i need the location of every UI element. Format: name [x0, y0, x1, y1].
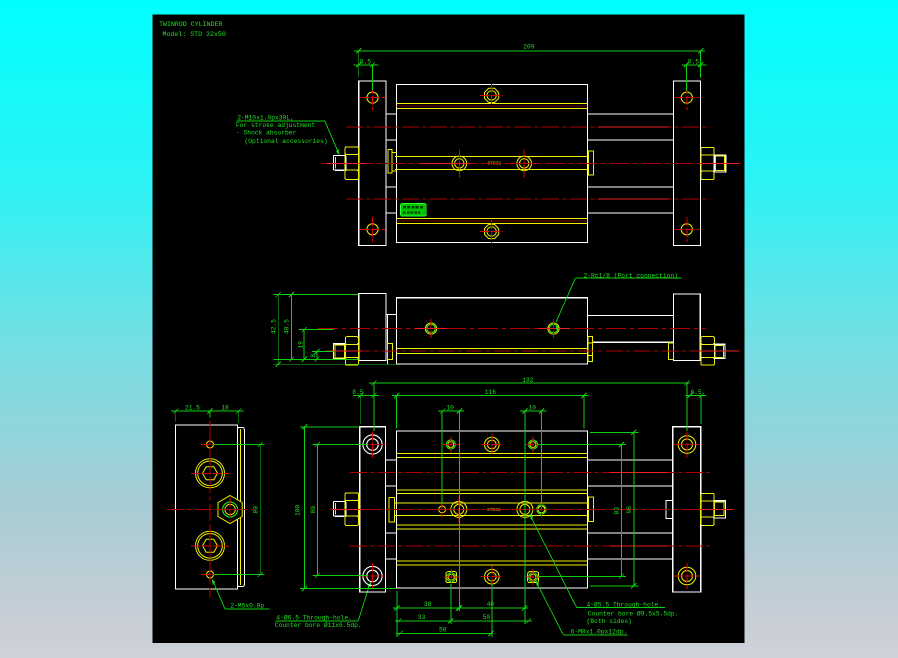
- svg-text:4-Ø6.5 Through-hole.: 4-Ø6.5 Through-hole.: [276, 614, 352, 622]
- svg-text:(Both sides): (Both sides): [587, 618, 632, 625]
- svg-text:10: 10: [529, 404, 537, 411]
- svg-text:96: 96: [626, 506, 633, 514]
- svg-text:8.5: 8.5: [688, 58, 699, 65]
- svg-text:8.5: 8.5: [352, 389, 363, 396]
- svg-text:18: 18: [221, 404, 229, 411]
- svg-text:TWINROD CYLINDER: TWINROD CYLINDER: [159, 21, 222, 28]
- svg-text:Counter bore Ø9.5x5.5dp.: Counter bore Ø9.5x5.5dp.: [588, 610, 679, 618]
- svg-text:Counter bore Ø11x6.5dp.: Counter bore Ø11x6.5dp.: [275, 621, 362, 629]
- svg-text:21.5: 21.5: [185, 404, 200, 411]
- svg-text:192: 192: [522, 377, 533, 384]
- svg-text:40.5: 40.5: [283, 319, 290, 334]
- svg-text:Model: STD 32x50: Model: STD 32x50: [163, 31, 226, 38]
- svg-text:209: 209: [523, 44, 534, 51]
- svg-text:19: 19: [298, 341, 305, 349]
- svg-text:For stroke adjustment: For stroke adjustment: [236, 122, 316, 129]
- svg-text:50: 50: [483, 614, 491, 621]
- svg-text:6.5: 6.5: [691, 389, 702, 396]
- svg-text:8: 8: [310, 354, 317, 358]
- svg-text:2-Rc1/8 (Port connection): 2-Rc1/8 (Port connection): [584, 273, 678, 280]
- svg-text:100: 100: [294, 505, 301, 516]
- svg-text:83: 83: [614, 507, 621, 515]
- svg-text:58: 58: [439, 627, 447, 634]
- svg-text:10: 10: [446, 404, 454, 411]
- svg-text:80: 80: [253, 506, 260, 514]
- svg-text:- Shock absorber: - Shock absorber: [236, 129, 297, 136]
- svg-text:33: 33: [418, 614, 426, 621]
- svg-text:40: 40: [487, 601, 495, 608]
- svg-text:116: 116: [485, 389, 496, 396]
- svg-text:8.5: 8.5: [360, 58, 371, 65]
- svg-text:(Optional accessories): (Optional accessories): [245, 138, 328, 145]
- svg-text:38: 38: [424, 601, 432, 608]
- svg-text:80: 80: [310, 506, 317, 514]
- svg-text:42.5: 42.5: [271, 319, 278, 334]
